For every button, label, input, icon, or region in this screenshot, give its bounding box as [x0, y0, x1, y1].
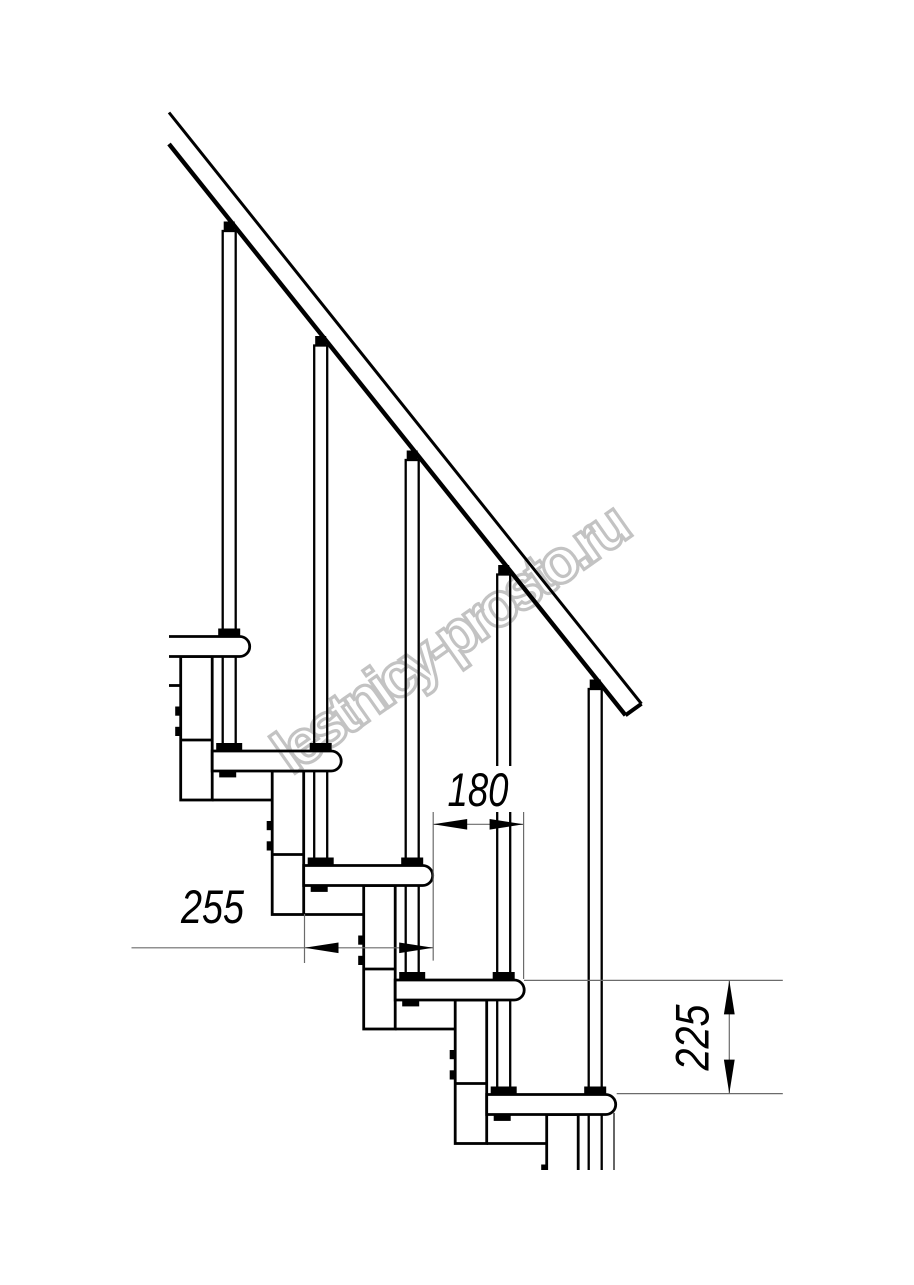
svg-text:225: 225: [666, 1004, 719, 1072]
svg-text:255: 255: [180, 880, 244, 933]
svg-text:180: 180: [448, 763, 509, 816]
